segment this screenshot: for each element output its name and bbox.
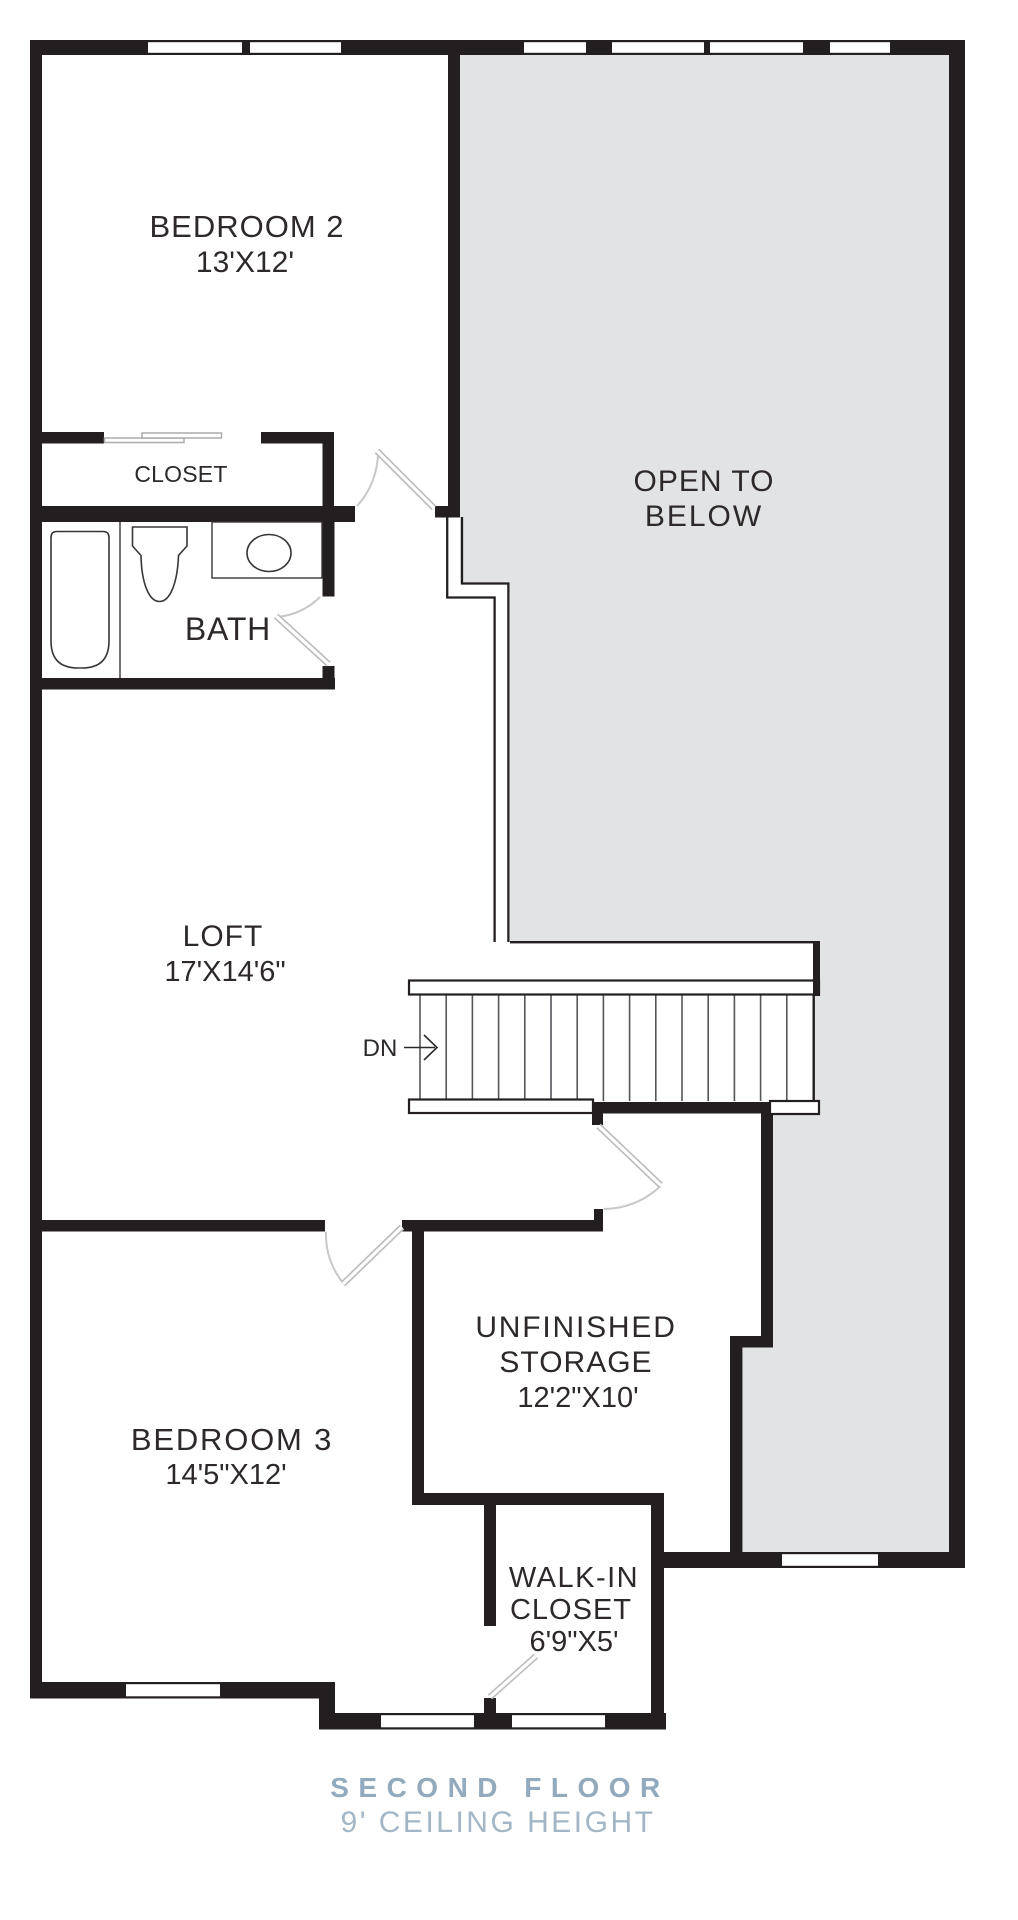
svg-text:OPEN TO: OPEN TO [634,465,775,498]
svg-text:CLOSET: CLOSET [510,1594,632,1626]
svg-text:BEDROOM 2: BEDROOM 2 [149,209,344,244]
svg-text:6'9"X5': 6'9"X5' [529,1626,618,1658]
svg-text:BEDROOM 3: BEDROOM 3 [131,1422,333,1457]
svg-text:LOFT: LOFT [183,920,264,953]
svg-text:17'X14'6": 17'X14'6" [164,956,285,988]
svg-text:CLOSET: CLOSET [134,461,227,487]
svg-text:DN: DN [363,1035,398,1062]
svg-text:WALK-IN: WALK-IN [509,1562,639,1594]
svg-text:STORAGE: STORAGE [499,1346,652,1379]
svg-text:9' CEILING HEIGHT: 9' CEILING HEIGHT [341,1806,656,1839]
svg-text:12'2"X10': 12'2"X10' [517,1382,638,1414]
svg-text:BELOW: BELOW [645,500,763,533]
svg-text:UNFINISHED: UNFINISHED [475,1311,676,1344]
svg-text:13'X12': 13'X12' [196,246,294,279]
svg-text:SECOND FLOOR: SECOND FLOOR [330,1772,670,1803]
svg-text:BATH: BATH [185,611,271,647]
svg-text:14'5"X12': 14'5"X12' [165,1459,286,1491]
